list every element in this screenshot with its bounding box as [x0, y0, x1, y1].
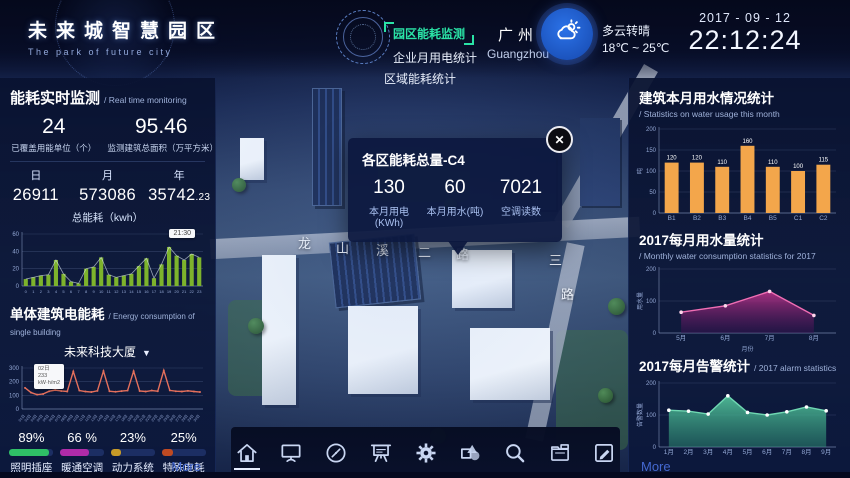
home-icon[interactable]	[231, 435, 263, 471]
building	[240, 138, 264, 180]
svg-text:5: 5	[62, 289, 65, 294]
svg-text:B5: B5	[769, 215, 777, 222]
header: 未来城智慧园区 The park of future city 园区能耗监测 企…	[0, 0, 850, 78]
popup-pointer	[448, 241, 468, 255]
svg-text:150: 150	[646, 148, 657, 154]
svg-text:200: 200	[9, 380, 20, 386]
left-panel-energy-monitor: 能耗实时监测/ Real time monitoring 24 已覆盖用能单位（…	[0, 78, 216, 478]
building	[580, 118, 620, 206]
progress-bar	[9, 449, 53, 456]
chart-tooltip: 21:30	[169, 229, 195, 238]
alarm-2017-title: 2017每月告警统计/ 2017 alarm statistics	[629, 353, 850, 375]
svg-text:0: 0	[653, 445, 657, 451]
svg-text:0: 0	[653, 331, 657, 337]
city-name-en: Guangzhou	[487, 47, 549, 61]
svg-text:2月: 2月	[683, 448, 693, 456]
weather-text: 多云转晴 18℃ ~ 25℃	[602, 23, 669, 57]
district-energy-popup: 各区能耗总量-C4 130 本月用电(KWh) 60 本月用水(吨) 7021 …	[348, 138, 562, 242]
svg-text:13: 13	[122, 289, 127, 294]
building	[312, 88, 342, 206]
svg-text:23: 23	[197, 289, 202, 294]
app-subtitle: The park of future city	[28, 47, 224, 57]
svg-text:300: 300	[9, 366, 20, 372]
svg-text:8: 8	[85, 289, 88, 294]
stat-units-covered: 24 已覆盖用能单位（个）	[0, 115, 108, 154]
clock-display: 22:12:24	[676, 25, 814, 56]
stat-monitored-area: 95.46 监测建筑总面积（万平方米）	[108, 115, 216, 154]
weather-badge	[541, 8, 593, 60]
svg-text:7月: 7月	[782, 448, 792, 456]
alarm-2017-area-chart: 01002001月2月3月4月5月6月7月8月9月告警数量	[635, 375, 844, 459]
building	[348, 306, 418, 394]
svg-text:4: 4	[55, 289, 58, 294]
chevron-down-icon: ▼	[142, 348, 151, 358]
building-selector-dropdown[interactable]: 未来科技大厦▼	[0, 343, 215, 360]
water-2017-title: 2017每月用水量统计 / Monthly water consumption …	[629, 225, 850, 261]
svg-text:B2: B2	[693, 215, 701, 222]
svg-text:0: 0	[16, 407, 20, 413]
water-usage-bar-chart: 050100150200120120110160110100115B1B2B3B…	[635, 121, 844, 225]
svg-text:9月: 9月	[821, 448, 831, 456]
road-label: 二	[418, 242, 432, 261]
svg-text:22: 22	[189, 289, 194, 294]
svg-text:月份: 月份	[741, 345, 753, 353]
popup-electricity: 130 本月用电(KWh)	[356, 177, 422, 229]
breakdown-lighting: 89% 照明插座	[6, 430, 57, 475]
svg-text:200: 200	[646, 267, 657, 273]
svg-text:4月: 4月	[723, 448, 733, 456]
svg-text:0: 0	[16, 284, 20, 290]
city-name: 广州	[487, 24, 549, 45]
building	[262, 255, 296, 405]
lawn	[228, 300, 292, 396]
compass-icon[interactable]	[320, 435, 352, 471]
svg-text:用水量: 用水量	[636, 292, 644, 310]
building	[329, 234, 421, 309]
svg-text:0: 0	[25, 289, 28, 294]
svg-text:19: 19	[167, 289, 172, 294]
main-nav: 园区能耗监测 企业月用电统计 区域能耗统计	[384, 18, 477, 87]
svg-text:110: 110	[768, 160, 778, 166]
svg-text:1: 1	[32, 289, 35, 294]
svg-text:20: 20	[174, 289, 179, 294]
date-display: 2017 - 09 - 12	[676, 11, 814, 25]
svg-text:18: 18	[159, 289, 164, 294]
svg-text:B1: B1	[668, 215, 676, 222]
chart-tooltip: 02日 233 kW·h/m2	[34, 364, 64, 389]
smart-park-dashboard: 龙 山 溪 二 路 三 路 未来城智慧园区 The park of future…	[0, 0, 850, 478]
road-label: 龙	[298, 233, 312, 252]
nav-item-enterprise-electricity[interactable]: 企业月用电统计	[393, 49, 477, 66]
svg-text:5月: 5月	[676, 334, 686, 342]
building	[452, 250, 512, 308]
total-day: 日 26911	[0, 167, 72, 205]
svg-text:7: 7	[77, 289, 80, 294]
svg-text:16: 16	[144, 289, 149, 294]
road	[525, 242, 584, 441]
popup-stats: 130 本月用电(KWh) 60 本月用水(吨) 7021 空调读数	[348, 173, 562, 242]
breakdown-hvac: 66 % 暖通空调	[57, 430, 108, 475]
svg-text:100: 100	[9, 393, 20, 399]
svg-text:C2: C2	[819, 215, 828, 222]
water-2017-area-chart: 01002005月6月7月8月用水量月份	[635, 261, 844, 353]
water-month-title: 建筑本月用水情况统计 / Statistics on water usage t…	[629, 78, 850, 119]
total-energy-caption: 总能耗（kwh）	[0, 210, 215, 225]
svg-text:B3: B3	[718, 215, 726, 222]
svg-text:120: 120	[692, 156, 703, 162]
svg-text:9: 9	[93, 289, 96, 294]
svg-text:100: 100	[646, 299, 657, 305]
presentation-icon[interactable]	[365, 435, 397, 471]
road-label: 三	[549, 250, 563, 269]
svg-text:5月: 5月	[742, 448, 752, 456]
svg-text:200: 200	[646, 127, 657, 133]
building-energy-title: 单体建筑电能耗/ Energy consumption of single bu…	[0, 298, 215, 338]
bottom-band	[0, 472, 850, 478]
svg-text:21: 21	[182, 289, 187, 294]
right-panel-water-stats: 建筑本月用水情况统计 / Statistics on water usage t…	[628, 78, 850, 478]
progress-bar	[162, 449, 206, 456]
svg-text:C1: C1	[794, 215, 803, 222]
svg-text:8月: 8月	[809, 334, 819, 342]
svg-text:10: 10	[99, 289, 104, 294]
monitor-icon[interactable]	[276, 435, 308, 471]
files-icon[interactable]	[544, 435, 576, 471]
svg-text:吨: 吨	[636, 168, 644, 174]
breakdown-power-system: 23% 动力系统	[108, 430, 159, 475]
svg-text:6月: 6月	[762, 448, 772, 456]
left-panel-title: 能耗实时监测/ Real time monitoring	[0, 78, 215, 108]
datetime: 2017 - 09 - 12 22:12:24	[676, 11, 814, 56]
tree	[232, 178, 246, 192]
svg-text:15: 15	[137, 289, 142, 294]
svg-text:11: 11	[107, 289, 112, 294]
divider	[10, 161, 205, 162]
svg-text:7月: 7月	[765, 334, 775, 342]
svg-text:60: 60	[12, 232, 19, 238]
search-icon[interactable]	[499, 435, 531, 471]
svg-text:100: 100	[793, 164, 804, 170]
progress-bar	[111, 449, 155, 456]
svg-text:115: 115	[819, 158, 829, 164]
settings-icon[interactable]	[410, 435, 442, 471]
total-month: 月 573086	[72, 167, 144, 205]
close-icon[interactable]: ✕	[546, 126, 573, 153]
bottom-toolbar	[231, 427, 620, 478]
city-block: 广州 Guangzhou	[487, 24, 549, 61]
svg-text:50: 50	[649, 190, 656, 196]
road-label: 溪	[376, 240, 390, 259]
svg-text:20: 20	[12, 267, 19, 273]
svg-text:100: 100	[646, 413, 657, 419]
svg-text:200: 200	[646, 381, 657, 387]
svg-text:B4: B4	[744, 215, 752, 222]
progress-bar	[60, 449, 104, 456]
logo: 未来城智慧园区 The park of future city	[28, 16, 224, 57]
tree	[608, 298, 625, 315]
svg-text:8月: 8月	[801, 448, 811, 456]
svg-text:100: 100	[646, 169, 657, 175]
sun-cloud-icon	[552, 17, 582, 52]
hourly-energy-bar-chart: 21:30 0204060012345678910111213141516171…	[4, 226, 211, 298]
svg-text:14: 14	[129, 289, 134, 294]
nav-item-regional-energy[interactable]: 区域能耗统计	[384, 70, 477, 87]
tree	[598, 388, 613, 403]
svg-text:3: 3	[47, 289, 50, 294]
edit-icon[interactable]	[588, 435, 620, 471]
weather-temperature: 18℃ ~ 25℃	[602, 40, 669, 57]
total-year: 年 35742.23	[143, 167, 215, 205]
popup-water: 60 本月用水(吨)	[422, 177, 488, 229]
coverage-stats: 24 已覆盖用能单位（个） 95.46 监测建筑总面积（万平方米）	[0, 115, 215, 154]
road-label: 路	[561, 284, 575, 303]
svg-text:160: 160	[742, 139, 753, 145]
svg-text:1月: 1月	[664, 448, 674, 456]
svg-text:12: 12	[114, 289, 119, 294]
app-title: 未来城智慧园区	[28, 16, 224, 43]
nav-item-park-energy-monitor[interactable]: 园区能耗监测	[384, 22, 477, 45]
svg-text:6: 6	[70, 289, 73, 294]
svg-text:2: 2	[40, 289, 43, 294]
spinner-emblem-icon	[336, 10, 390, 64]
building-energy-line-chart: 02日 233 kW·h/m2 010020030001日02日03日04日05…	[4, 360, 211, 426]
svg-text:告警数量: 告警数量	[636, 403, 644, 427]
shapes-icon[interactable]	[454, 435, 486, 471]
building	[470, 328, 550, 400]
weather-condition: 多云转晴	[602, 23, 669, 40]
svg-text:6月: 6月	[720, 334, 730, 342]
svg-text:120: 120	[667, 156, 678, 162]
svg-text:0: 0	[653, 211, 657, 217]
tree	[248, 318, 264, 334]
popup-title: 各区能耗总量-C4	[348, 138, 562, 173]
svg-text:30日: 30日	[193, 414, 201, 422]
energy-totals: 日 26911 月 573086 年 35742.23	[0, 167, 215, 205]
svg-text:110: 110	[717, 160, 727, 166]
svg-text:40: 40	[12, 249, 19, 255]
popup-hvac-reading: 7021 空调读数	[488, 177, 554, 229]
svg-text:3月: 3月	[703, 448, 713, 456]
svg-text:17: 17	[152, 289, 157, 294]
